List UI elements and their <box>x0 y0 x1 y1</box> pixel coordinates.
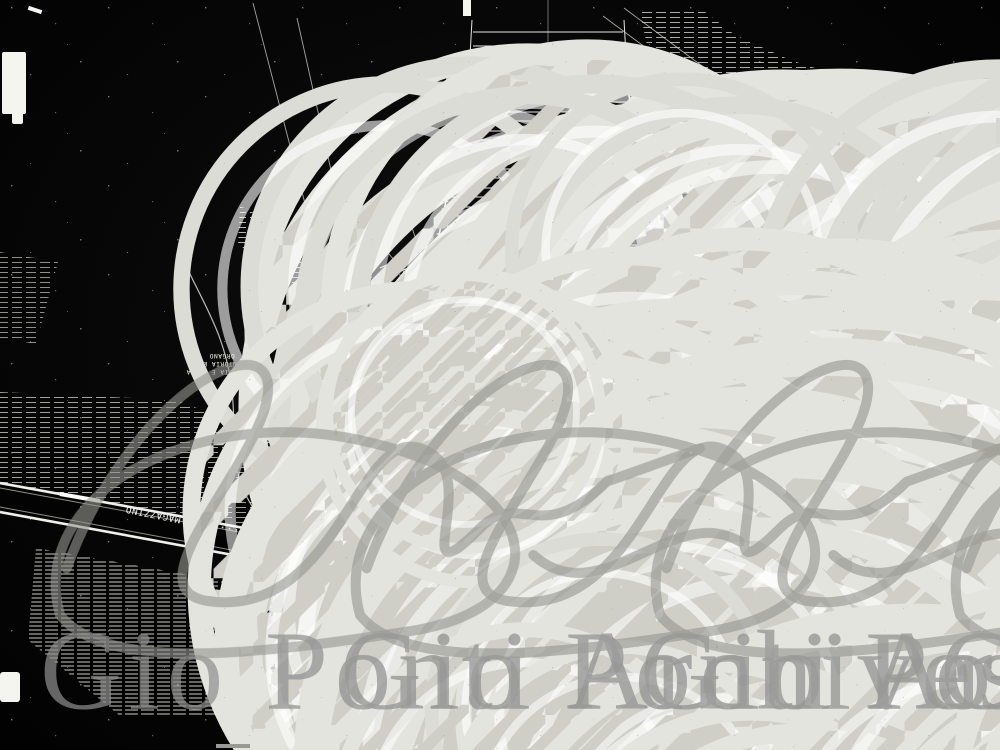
dust-speckle-overlay <box>0 0 1000 750</box>
site-plan-drawing: Gio Ponti Archives AL MAGAZZINO <box>0 0 1000 750</box>
photograph-of-site-plan: Gio Ponti Archives AL MAGAZZINO <box>0 0 1000 750</box>
